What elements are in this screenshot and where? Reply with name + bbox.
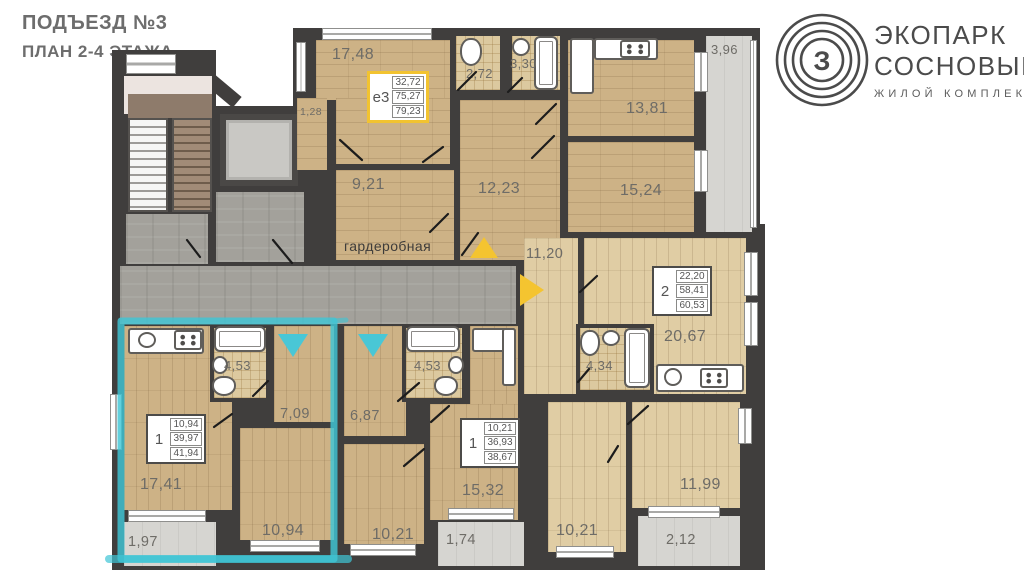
floor-plan-page: ПОДЪЕЗД №3 ПЛАН 2-4 ЭТАЖА З ЭКОПАРК СОСН… [0, 0, 1024, 571]
room-area-label: 10,21 [372, 526, 414, 544]
room-name-label: гардеробная [344, 238, 431, 254]
logo-monogram: З [814, 46, 831, 76]
room-area-label: 2,12 [666, 532, 696, 548]
window [448, 508, 514, 520]
brand-tagline: ЖИЛОЙ КОМПЛЕКС [874, 88, 1024, 100]
balcony-3-96 [706, 36, 752, 232]
sink-fixture [664, 368, 682, 386]
room-area-label: 15,32 [462, 482, 504, 500]
room-area-label: 1,28 [300, 106, 322, 118]
room-area-label: 13,81 [626, 100, 668, 118]
room-area-label: 12,23 [478, 180, 520, 198]
apartment-info-2[interactable]: 2 22,20 58,41 60,53 [652, 266, 712, 316]
lobby-right [216, 192, 304, 262]
window [296, 42, 306, 92]
room-area-label: 10,21 [556, 522, 598, 540]
apartment-info-1-mid[interactable]: 1 10,21 36,93 38,67 [460, 418, 520, 468]
sink-fixture [448, 356, 464, 374]
room-area-label: 15,24 [620, 182, 662, 200]
living-area-value: 22,20 [676, 270, 708, 283]
room-area-label: 20,67 [664, 328, 706, 346]
stove-fixture [700, 368, 728, 388]
brand-block: З ЭКОПАРК СОСНОВЫЙ ЖИЛОЙ КОМПЛЕКС [766, 8, 1016, 118]
kitchen-counter [502, 328, 516, 386]
room-area-label: 6,87 [350, 408, 380, 424]
room-area-label: 1,74 [446, 532, 476, 548]
brand-text: ЭКОПАРК СОСНОВЫЙ ЖИЛОЙ КОМПЛЕКС [874, 20, 1024, 100]
corridor [120, 266, 516, 324]
room-area-label: 11,20 [526, 246, 563, 262]
bathtub-fixture [406, 326, 460, 352]
ecopark-logo-icon: З [774, 12, 870, 108]
stairs-landing [128, 94, 212, 118]
entrance-title: ПОДЪЕЗД №3 [22, 12, 173, 35]
window [556, 546, 614, 558]
apartment-type: е3 [372, 76, 390, 118]
sink-fixture [602, 330, 620, 346]
room-area-label: 17,48 [332, 46, 374, 64]
area-value: 36,93 [484, 436, 516, 449]
apartment-type: 2 [656, 270, 674, 312]
total-area-value: 79,23 [392, 105, 424, 118]
window [694, 52, 708, 92]
lobby-left [126, 214, 208, 264]
area-value: 75,27 [392, 90, 424, 103]
balcony-glazing [750, 40, 757, 228]
window [744, 302, 758, 346]
sink-fixture [512, 38, 530, 56]
elevator [220, 114, 298, 186]
room-area-label: 9,21 [352, 176, 385, 194]
window [350, 544, 416, 556]
apartment-type: 1 [464, 422, 482, 464]
toilet-fixture [434, 376, 458, 396]
kitchen-counter [570, 38, 594, 94]
toilet-fixture [580, 330, 600, 356]
room-area-label: 11,99 [680, 476, 721, 494]
total-area-value: 38,67 [484, 451, 516, 464]
stair-flight-right [172, 118, 212, 212]
bathtub-fixture [624, 328, 650, 388]
brand-name-line2: СОСНОВЫЙ [874, 51, 1024, 82]
living-area-value: 10,21 [484, 422, 516, 435]
room-area-label: 4,53 [414, 358, 441, 373]
room-area-label: 3,30 [510, 56, 537, 71]
window [648, 506, 720, 518]
stair-flight-left [128, 118, 168, 212]
toilet-fixture [460, 38, 482, 66]
window [322, 28, 432, 40]
room-area-label: 2,72 [466, 66, 493, 81]
selected-apartment-area[interactable] [116, 318, 338, 562]
total-area-value: 60,53 [676, 299, 708, 312]
window [126, 54, 176, 74]
window [694, 150, 708, 192]
living-area-value: 32,72 [392, 76, 424, 89]
stove-fixture [620, 40, 650, 58]
window [738, 408, 752, 444]
room-area-label: 3,96 [711, 42, 738, 57]
window [744, 252, 758, 296]
brand-name-line1: ЭКОПАРК [874, 20, 1024, 51]
area-value: 58,41 [676, 284, 708, 297]
room-area-label: 4,34 [586, 358, 613, 373]
apartment-info-e3[interactable]: е3 32,72 75,27 79,23 [368, 72, 428, 122]
bathtub-fixture [534, 36, 558, 90]
